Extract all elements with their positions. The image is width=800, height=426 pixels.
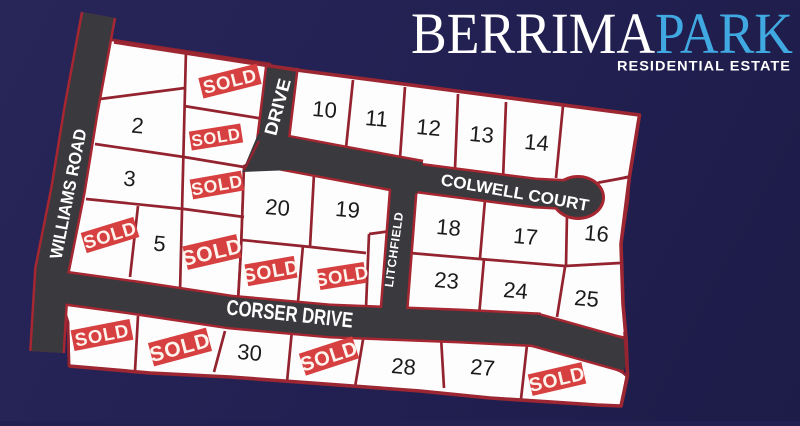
- svg-text:20: 20: [264, 194, 291, 221]
- svg-text:12: 12: [415, 114, 442, 141]
- svg-text:14: 14: [523, 129, 550, 156]
- svg-text:30: 30: [236, 339, 263, 366]
- svg-text:2: 2: [130, 113, 144, 139]
- svg-text:17: 17: [512, 223, 539, 250]
- svg-text:3: 3: [122, 166, 136, 192]
- svg-text:25: 25: [573, 285, 600, 312]
- svg-text:16: 16: [583, 220, 610, 247]
- svg-text:RESIDENTIAL ESTATE: RESIDENTIAL ESTATE: [617, 58, 791, 74]
- svg-text:24: 24: [502, 277, 529, 304]
- svg-text:23: 23: [433, 267, 460, 294]
- svg-text:11: 11: [364, 105, 389, 132]
- svg-text:19: 19: [334, 196, 361, 223]
- svg-text:5: 5: [152, 231, 166, 257]
- svg-text:13: 13: [468, 121, 495, 148]
- svg-text:10: 10: [311, 96, 338, 123]
- svg-text:28: 28: [390, 353, 417, 380]
- svg-text:BERRIMAPARK: BERRIMAPARK: [411, 1, 793, 66]
- svg-text:18: 18: [435, 214, 462, 241]
- svg-text:27: 27: [469, 354, 496, 381]
